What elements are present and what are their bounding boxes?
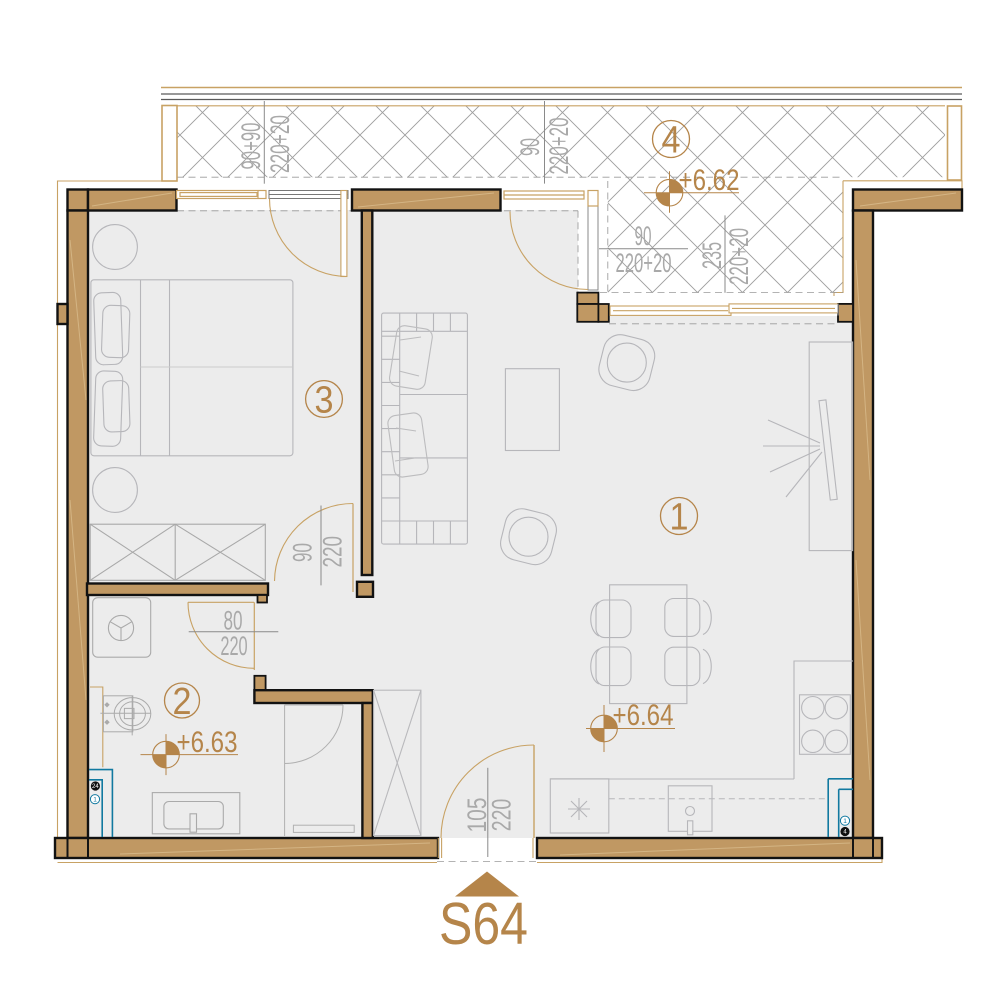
svg-text:+6.62: +6.62 — [679, 164, 740, 197]
svg-text:220+20: 220+20 — [265, 115, 295, 173]
svg-text:1: 1 — [843, 818, 847, 825]
svg-text:+6.64: +6.64 — [613, 699, 674, 732]
svg-text:3: 3 — [315, 380, 334, 422]
svg-text:90: 90 — [288, 543, 318, 562]
svg-text:1: 1 — [670, 497, 689, 539]
svg-text:24: 24 — [92, 784, 99, 790]
svg-text:220: 220 — [318, 536, 348, 568]
svg-text:220: 220 — [220, 631, 247, 661]
svg-text:220+20: 220+20 — [724, 228, 754, 285]
svg-text:+6.63: +6.63 — [177, 726, 238, 759]
svg-text:1: 1 — [93, 797, 97, 804]
svg-text:90: 90 — [635, 221, 652, 251]
svg-text:220+20: 220+20 — [616, 248, 672, 278]
svg-text:S64: S64 — [439, 891, 528, 957]
svg-text:4: 4 — [662, 120, 681, 162]
svg-text:220: 220 — [487, 799, 517, 832]
svg-text:2: 2 — [173, 681, 192, 723]
svg-text:220+20: 220+20 — [544, 118, 574, 175]
svg-text:90+90: 90+90 — [236, 123, 266, 170]
svg-text:235: 235 — [697, 242, 727, 269]
svg-text:90: 90 — [515, 138, 545, 156]
